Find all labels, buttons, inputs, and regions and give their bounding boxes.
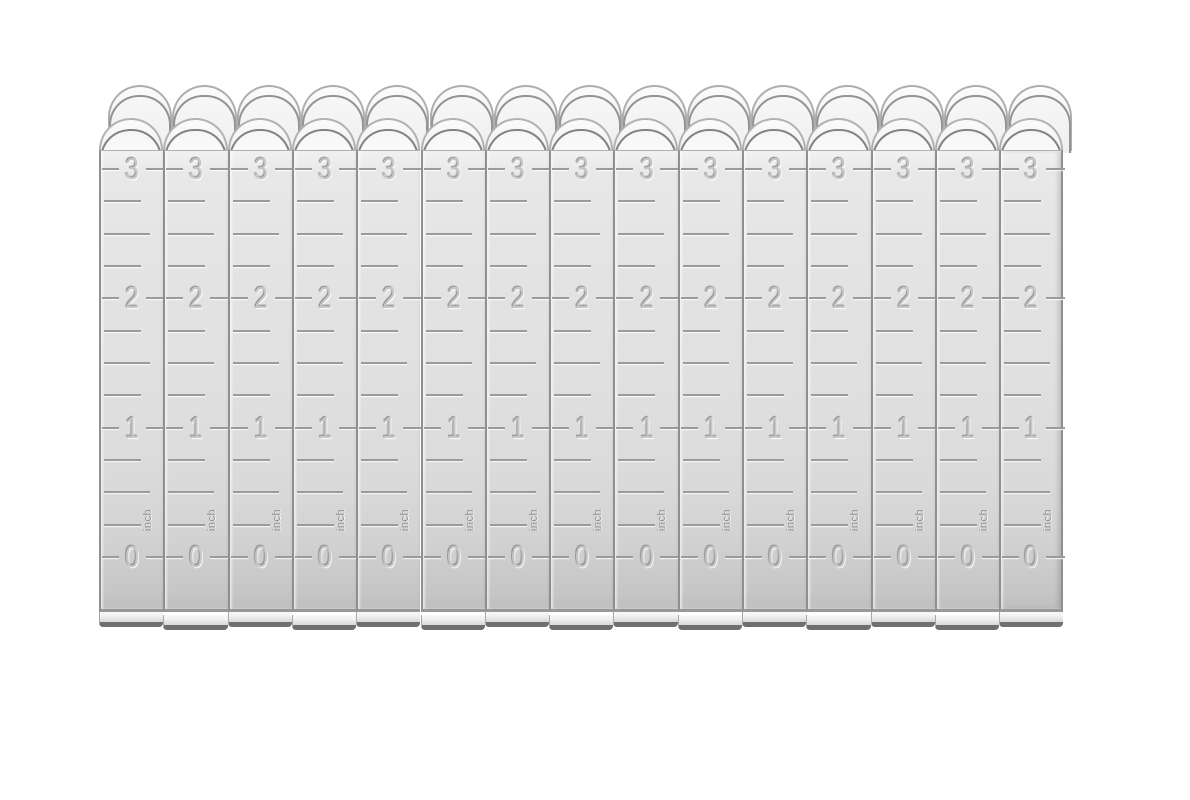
quarter-inch-tick [361,330,398,332]
inch-line-right [596,427,615,429]
inch-line-right [339,427,358,429]
inch-line-right [146,556,165,558]
quarter-inch-tick [876,459,913,461]
half-inch-tick [168,362,214,364]
quarter-inch-tick [683,394,720,396]
inch-line-left [359,427,376,429]
inch-line-left [745,427,762,429]
half-inch-tick [104,362,150,364]
ruler-scale-face: 3210inch [292,150,356,612]
ruler-bottom-lip [99,612,163,627]
inch-line-right [789,556,808,558]
inch-number-label: 2 [961,282,975,314]
quarter-inch-tick [361,459,398,461]
inch-line-left [1002,297,1019,299]
inch-line-right [918,556,937,558]
half-inch-tick [876,491,922,493]
quarter-inch-tick [168,394,205,396]
inch-line-left [938,297,955,299]
quarter-inch-tick [876,524,913,526]
inch-line-right [853,297,872,299]
half-inch-tick [1004,362,1050,364]
inch-line-left [745,556,762,558]
ruler-strip: 3210inch [99,0,163,800]
inch-line-left [681,427,698,429]
half-inch-tick [490,233,536,235]
unit-label: inch [849,498,861,542]
inch-line-left [102,556,119,558]
inch-line-right [468,168,487,170]
inch-number-label: 3 [447,153,461,185]
quarter-inch-tick [490,459,527,461]
inch-number-label: 3 [511,153,525,185]
inch-line-left [616,556,633,558]
inch-number-label: 0 [382,541,396,573]
ruler-scale-face: 3210inch [742,150,806,612]
inch-number-label: 2 [125,282,139,314]
half-inch-tick [361,233,407,235]
inch-number-label: 0 [254,541,268,573]
ruler-scale-face: 3210inch [356,150,420,612]
ruler-scale-face: 3210inch [678,150,742,612]
quarter-inch-tick [940,200,977,202]
quarter-inch-tick [361,524,398,526]
inch-line-left [809,556,826,558]
inch-line-left [938,556,955,558]
ruler-strip: 3210inch [678,0,742,800]
unit-label: inch [914,498,926,542]
quarter-inch-tick [876,394,913,396]
half-inch-tick [361,491,407,493]
quarter-inch-tick [426,330,463,332]
inch-line-right [918,297,937,299]
inch-number-label: 3 [640,153,654,185]
inch-line-left [874,556,891,558]
ruler-scale-face: 3210inch [806,150,870,612]
quarter-inch-tick [104,459,141,461]
inch-number-label: 3 [833,153,847,185]
quarter-inch-tick [297,524,334,526]
inch-number-label: 3 [190,153,204,185]
inch-line-right [982,297,1001,299]
inch-number-label: 3 [382,153,396,185]
ruler-strip: 3210inch [421,0,485,800]
quarter-inch-tick [811,394,848,396]
half-inch-tick [233,491,279,493]
half-inch-tick [811,233,857,235]
inch-line-left [295,297,312,299]
quarter-inch-tick [426,524,463,526]
inch-line-right [275,427,294,429]
inch-line-right [853,427,872,429]
ruler-strip: 3210inch [228,0,292,800]
quarter-inch-tick [811,459,848,461]
half-inch-tick [168,491,214,493]
inch-number-label: 2 [318,282,332,314]
inch-line-right [210,168,229,170]
quarter-inch-tick [618,200,655,202]
quarter-inch-tick [297,330,334,332]
inch-number-label: 2 [640,282,654,314]
quarter-inch-tick [554,330,591,332]
inch-line-right [532,556,551,558]
inch-line-left [1002,168,1019,170]
inch-number-label: 3 [575,153,589,185]
inch-line-left [424,556,441,558]
inch-line-right [1046,427,1065,429]
ruler-bottom-lip [871,612,935,627]
inch-line-right [468,556,487,558]
inch-line-right [596,556,615,558]
quarter-inch-tick [297,265,334,267]
inch-line-left [874,297,891,299]
inch-number-label: 3 [961,153,975,185]
half-inch-tick [876,233,922,235]
half-inch-tick [233,362,279,364]
half-inch-tick [297,233,343,235]
quarter-inch-tick [426,394,463,396]
inch-number-label: 3 [897,153,911,185]
quarter-inch-tick [811,265,848,267]
half-inch-tick [1004,491,1050,493]
ruler-bottom-lip [742,612,806,627]
inch-line-left [231,168,248,170]
quarter-inch-tick [490,394,527,396]
inch-number-label: 1 [1024,412,1038,444]
inch-line-left [874,427,891,429]
inch-line-left [424,168,441,170]
inch-number-label: 3 [1024,153,1038,185]
unit-label: inch [335,498,347,542]
half-inch-tick [940,233,986,235]
inch-line-right [789,427,808,429]
ruler-scale-face: 3210inch [613,150,677,612]
inch-line-right [403,427,422,429]
ruler-bottom-lip [549,615,613,630]
ruler-strip: 3210inch [935,0,999,800]
quarter-inch-tick [747,459,784,461]
quarter-inch-tick [426,200,463,202]
quarter-inch-tick [876,200,913,202]
inch-line-left [102,297,119,299]
quarter-inch-tick [1004,265,1041,267]
unit-label: inch [978,498,990,542]
inch-line-left [745,168,762,170]
unit-label: inch [206,498,218,542]
half-inch-tick [361,362,407,364]
inch-number-label: 0 [768,541,782,573]
inch-number-label: 1 [190,412,204,444]
inch-line-right [660,556,679,558]
ruler-bottom-lip [485,612,549,627]
inch-number-label: 1 [125,412,139,444]
unit-label: inch [528,498,540,542]
inch-line-right [1046,297,1065,299]
half-inch-tick [940,491,986,493]
inch-line-right [146,427,165,429]
inch-line-left [295,556,312,558]
inch-line-right [146,168,165,170]
half-inch-tick [747,362,793,364]
inch-number-label: 3 [768,153,782,185]
inch-number-label: 1 [575,412,589,444]
quarter-inch-tick [426,265,463,267]
half-inch-tick [683,362,729,364]
inch-line-left [1002,556,1019,558]
inch-line-right [982,556,1001,558]
inch-line-left [166,556,183,558]
quarter-inch-tick [490,200,527,202]
inch-line-right [275,556,294,558]
half-inch-tick [811,491,857,493]
ruler-bottom-lip [356,612,420,627]
inch-line-right [789,297,808,299]
half-inch-tick [426,491,472,493]
quarter-inch-tick [683,200,720,202]
ruler-strip: 3210inch [742,0,806,800]
ruler-bottom-lip [163,615,227,630]
unit-label: inch [592,498,604,542]
inch-number-label: 0 [704,541,718,573]
quarter-inch-tick [1004,200,1041,202]
inch-line-right [725,168,744,170]
ruler-bottom-lip [613,612,677,627]
inch-number-label: 0 [897,541,911,573]
quarter-inch-tick [747,265,784,267]
inch-number-label: 2 [768,282,782,314]
ruler-bottom-lip [292,615,356,630]
unit-label: inch [142,498,154,542]
inch-line-left [231,556,248,558]
ruler-strip: 3210inch [999,0,1063,800]
inch-line-left [424,297,441,299]
quarter-inch-tick [426,459,463,461]
inch-line-right [596,168,615,170]
inch-number-label: 1 [447,412,461,444]
inch-line-left [166,427,183,429]
inch-line-right [532,168,551,170]
ruler-bottom-lip [678,615,742,630]
inch-line-right [210,427,229,429]
inch-line-left [809,168,826,170]
quarter-inch-tick [104,330,141,332]
inch-line-left [809,427,826,429]
quarter-inch-tick [104,394,141,396]
inch-line-left [166,297,183,299]
ruler-scale-face: 3210inch [99,150,163,612]
ruler-strip: 3210inch [356,0,420,800]
quarter-inch-tick [233,459,270,461]
inch-line-left [745,297,762,299]
ruler-scale-face: 3210inch [871,150,935,612]
inch-line-left [102,427,119,429]
inch-line-right [403,556,422,558]
inch-number-label: 0 [833,541,847,573]
unit-label: inch [271,498,283,542]
half-inch-tick [747,491,793,493]
ruler-scale-face: 3210inch [549,150,613,612]
half-inch-tick [618,491,664,493]
quarter-inch-tick [940,524,977,526]
inch-number-label: 3 [704,153,718,185]
ruler-strip: 3210inch [806,0,870,800]
inch-line-left [874,168,891,170]
inch-number-label: 1 [961,412,975,444]
inch-number-label: 2 [190,282,204,314]
inch-line-right [146,297,165,299]
quarter-inch-tick [1004,459,1041,461]
quarter-inch-tick [683,524,720,526]
inch-number-label: 2 [511,282,525,314]
quarter-inch-tick [490,265,527,267]
inch-line-right [403,168,422,170]
quarter-inch-tick [876,265,913,267]
half-inch-tick [1004,233,1050,235]
half-inch-tick [426,233,472,235]
ruler-scale-face: 3210inch [421,150,485,612]
inch-line-right [918,427,937,429]
inch-line-right [210,297,229,299]
inch-line-right [1046,556,1065,558]
ruler-scale-face: 3210inch [485,150,549,612]
quarter-inch-tick [233,524,270,526]
quarter-inch-tick [811,524,848,526]
quarter-inch-tick [747,330,784,332]
inch-number-label: 1 [511,412,525,444]
inch-number-label: 1 [704,412,718,444]
inch-number-label: 0 [961,541,975,573]
half-inch-tick [168,233,214,235]
inch-number-label: 0 [125,541,139,573]
inch-line-left [552,168,569,170]
inch-number-label: 2 [833,282,847,314]
inch-line-left [681,168,698,170]
quarter-inch-tick [490,524,527,526]
quarter-inch-tick [554,265,591,267]
inch-line-left [102,168,119,170]
quarter-inch-tick [1004,394,1041,396]
half-inch-tick [104,491,150,493]
quarter-inch-tick [233,200,270,202]
quarter-inch-tick [554,524,591,526]
inch-number-label: 0 [640,541,654,573]
half-inch-tick [104,233,150,235]
inch-line-right [918,168,937,170]
inch-line-right [339,556,358,558]
unit-label: inch [721,498,733,542]
inch-line-left [166,168,183,170]
half-inch-tick [683,233,729,235]
quarter-inch-tick [168,200,205,202]
ruler-scale-face: 3210inch [163,150,227,612]
inch-line-right [660,168,679,170]
inch-line-left [552,297,569,299]
quarter-inch-tick [683,265,720,267]
inch-line-left [616,168,633,170]
inch-line-left [295,427,312,429]
half-inch-tick [747,233,793,235]
half-inch-tick [940,362,986,364]
quarter-inch-tick [940,394,977,396]
half-inch-tick [554,491,600,493]
inch-line-left [552,427,569,429]
ruler-strip: 3210inch [485,0,549,800]
quarter-inch-tick [361,200,398,202]
inch-number-label: 2 [254,282,268,314]
inch-line-right [660,297,679,299]
quarter-inch-tick [297,394,334,396]
quarter-inch-tick [940,330,977,332]
ruler-bottom-lip [999,612,1063,627]
half-inch-tick [876,362,922,364]
quarter-inch-tick [104,265,141,267]
inch-line-right [1046,168,1065,170]
inch-number-label: 2 [1024,282,1038,314]
inch-line-left [488,168,505,170]
quarter-inch-tick [233,330,270,332]
inch-line-left [616,297,633,299]
ruler-strip: 3210inch [871,0,935,800]
quarter-inch-tick [490,330,527,332]
ruler-bottom-lip [806,615,870,630]
inch-number-label: 1 [254,412,268,444]
quarter-inch-tick [747,524,784,526]
inch-number-label: 0 [447,541,461,573]
inch-line-left [681,297,698,299]
quarter-inch-tick [168,330,205,332]
quarter-inch-tick [104,200,141,202]
quarter-inch-tick [233,394,270,396]
unit-label: inch [1042,498,1054,542]
inch-line-right [725,556,744,558]
quarter-inch-tick [618,330,655,332]
quarter-inch-tick [168,459,205,461]
inch-number-label: 1 [897,412,911,444]
unit-label: inch [656,498,668,542]
inch-line-left [1002,427,1019,429]
quarter-inch-tick [683,459,720,461]
inch-line-right [660,427,679,429]
ruler-strip: 3210inch [163,0,227,800]
inch-line-right [275,168,294,170]
inch-line-right [339,168,358,170]
inch-line-right [725,427,744,429]
inch-number-label: 2 [575,282,589,314]
inch-number-label: 2 [897,282,911,314]
half-inch-tick [490,491,536,493]
inch-number-label: 1 [318,412,332,444]
inch-line-left [231,297,248,299]
inch-number-label: 2 [704,282,718,314]
ruler-strip: 3210inch [549,0,613,800]
inch-number-label: 3 [125,153,139,185]
half-inch-tick [297,491,343,493]
inch-line-left [809,297,826,299]
half-inch-tick [426,362,472,364]
quarter-inch-tick [747,200,784,202]
quarter-inch-tick [876,330,913,332]
quarter-inch-tick [168,265,205,267]
inch-number-label: 0 [1024,541,1038,573]
inch-number-label: 3 [254,153,268,185]
inch-line-right [403,297,422,299]
inch-line-left [681,556,698,558]
inch-line-left [488,556,505,558]
unit-label: inch [464,498,476,542]
half-inch-tick [554,233,600,235]
inch-line-left [359,297,376,299]
inch-number-label: 1 [833,412,847,444]
